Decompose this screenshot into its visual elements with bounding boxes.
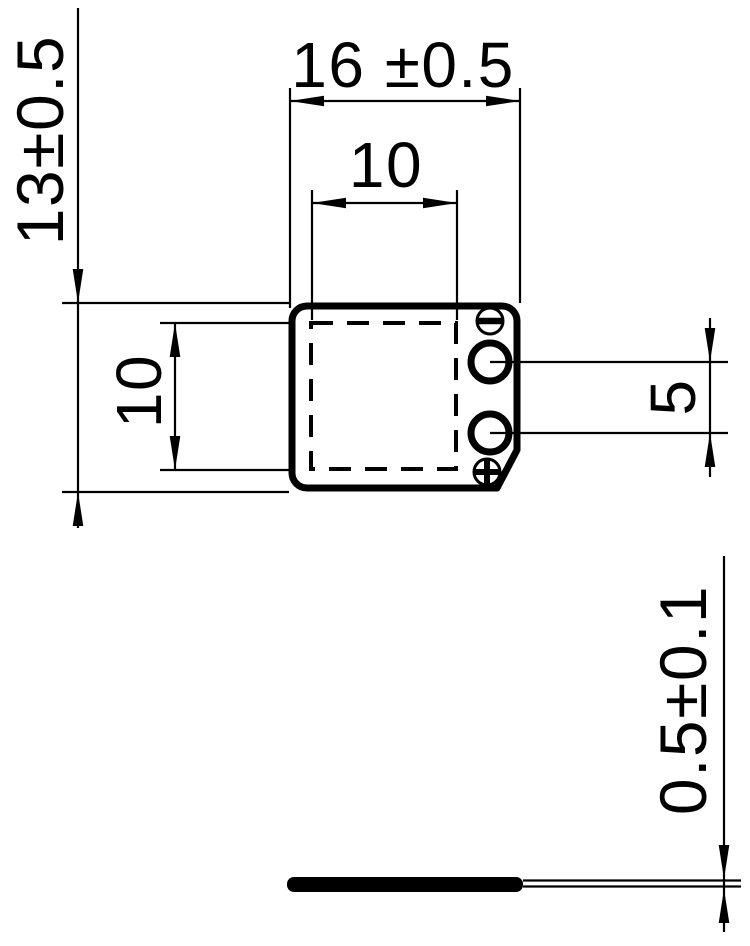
- dim-plate-thickness: 0.5±0.1: [646, 556, 729, 932]
- dim-overall-height-label: 13±0.5: [3, 35, 77, 245]
- dim-inner-height-label: 10: [103, 354, 175, 428]
- dim-inner-width-extension-lines: [312, 190, 457, 320]
- dim-inner-height-arrow-top: [170, 323, 181, 357]
- dim-plate-thickness-label: 0.5±0.1: [646, 585, 720, 815]
- dim-terminal-spacing: 5: [490, 318, 728, 477]
- side-view-plate-bar: [287, 877, 523, 892]
- dim-terminal-spacing-label: 5: [637, 378, 709, 415]
- technical-drawing-page: 16 ±0.5 10 13±0.5 10 5: [0, 0, 750, 946]
- dim-inner-height-arrow-bottom: [170, 436, 181, 470]
- dim-inner-height-extension-lines: [160, 323, 289, 470]
- dim-inner-width-arrow-right: [423, 198, 457, 209]
- dim-overall-height-arrow-top: [73, 269, 84, 303]
- dim-plate-thickness-extension-lines: [523, 881, 741, 887]
- dim-inner-width-arrow-left: [312, 198, 346, 209]
- side-view: [287, 877, 741, 892]
- dim-terminal-spacing-arrow-bottom: [705, 433, 716, 467]
- inner-dashed-outline: [311, 323, 456, 469]
- dim-plate-thickness-arrow-top: [719, 845, 730, 879]
- dim-inner-width-label: 10: [349, 129, 423, 201]
- dim-overall-height: 13±0.5: [3, 8, 289, 528]
- top-view: [292, 306, 517, 488]
- dim-plate-thickness-arrow-bottom: [719, 889, 730, 923]
- dim-inner-height: 10: [103, 323, 289, 470]
- dim-terminal-spacing-arrow-top: [705, 328, 716, 362]
- dimension-drawing-canvas: 16 ±0.5 10 13±0.5 10 5: [0, 0, 750, 946]
- dim-overall-width-label: 16 ±0.5: [291, 29, 515, 101]
- dim-overall-height-arrow-bottom: [73, 492, 84, 526]
- dim-inner-width: 10: [312, 129, 457, 320]
